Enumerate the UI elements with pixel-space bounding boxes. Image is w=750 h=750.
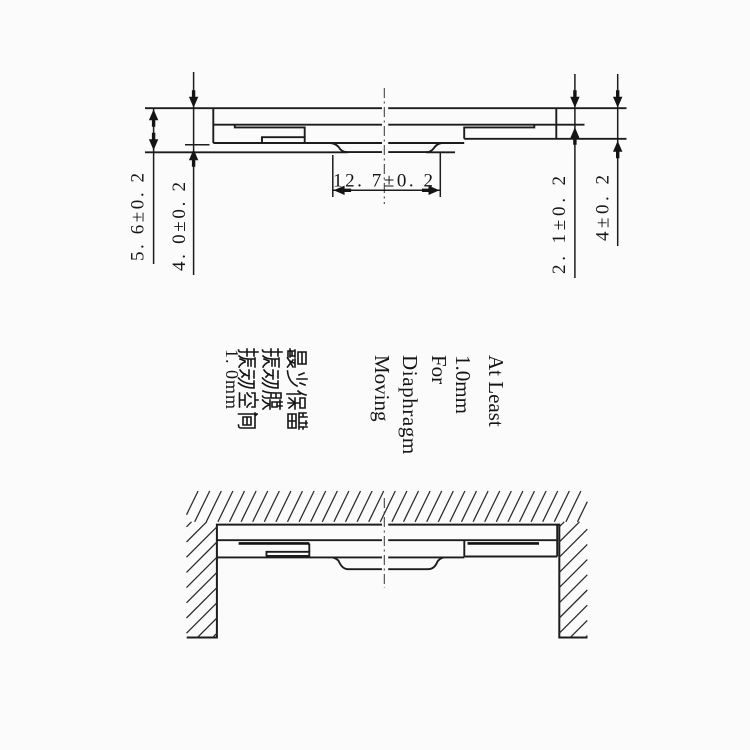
svg-text:1. 0mm: 1. 0mm — [222, 349, 242, 409]
svg-text:12. 7±0. 2: 12. 7±0. 2 — [333, 171, 433, 192]
svg-text:4. 0±0. 2: 4. 0±0. 2 — [169, 182, 190, 271]
svg-text:Diaphragm: Diaphragm — [398, 355, 422, 455]
svg-text:2. 1±0. 2: 2. 1±0. 2 — [549, 176, 570, 274]
svg-text:5. 6±0. 2: 5. 6±0. 2 — [128, 173, 149, 261]
svg-text:4±0. 2: 4±0. 2 — [593, 175, 614, 241]
svg-text:Moving: Moving — [370, 355, 394, 422]
svg-text:1.0mm: 1.0mm — [451, 355, 475, 414]
svg-text:For: For — [427, 355, 451, 384]
svg-text:At Least: At Least — [484, 355, 508, 427]
